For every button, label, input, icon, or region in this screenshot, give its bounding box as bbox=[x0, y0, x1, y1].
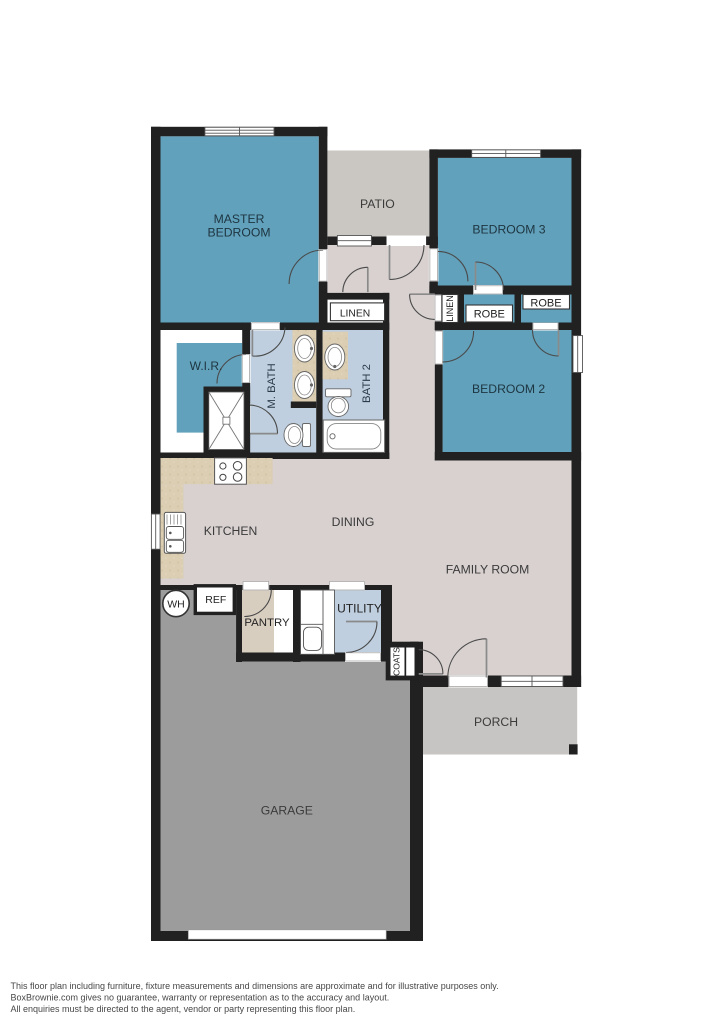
svg-text:KITCHEN: KITCHEN bbox=[204, 524, 258, 538]
svg-text:ROBE: ROBE bbox=[530, 298, 561, 310]
svg-text:LINEN: LINEN bbox=[340, 308, 370, 319]
svg-text:W.I.R.: W.I.R. bbox=[190, 359, 223, 373]
svg-text:COATS: COATS bbox=[392, 647, 402, 676]
svg-text:All enquiries must be directed: All enquiries must be directed to the ag… bbox=[11, 1004, 356, 1014]
svg-text:MASTER: MASTER bbox=[214, 212, 265, 226]
svg-text:GARAGE: GARAGE bbox=[261, 804, 313, 818]
svg-text:ROBE: ROBE bbox=[474, 309, 505, 321]
svg-text:REF: REF bbox=[205, 594, 226, 606]
svg-text:BEDROOM 2: BEDROOM 2 bbox=[472, 382, 545, 396]
svg-text:DINING: DINING bbox=[332, 515, 375, 529]
svg-text:PORCH: PORCH bbox=[474, 715, 518, 729]
svg-text:PATIO: PATIO bbox=[360, 197, 395, 211]
svg-text:BEDROOM: BEDROOM bbox=[208, 225, 271, 239]
svg-text:BoxBrownie.com gives no guaran: BoxBrownie.com gives no guarantee, warra… bbox=[11, 993, 390, 1003]
svg-text:BEDROOM 3: BEDROOM 3 bbox=[472, 222, 545, 236]
svg-text:BATH 2: BATH 2 bbox=[361, 364, 373, 403]
svg-text:WH: WH bbox=[167, 599, 185, 611]
svg-text:UTILITY: UTILITY bbox=[337, 602, 382, 616]
svg-text:This floor plan including furn: This floor plan including furniture, fix… bbox=[11, 981, 499, 991]
svg-text:PANTRY: PANTRY bbox=[244, 617, 290, 629]
svg-text:LINEN: LINEN bbox=[445, 295, 455, 322]
svg-text:FAMILY ROOM: FAMILY ROOM bbox=[446, 562, 530, 576]
svg-text:M. BATH: M. BATH bbox=[266, 363, 278, 408]
